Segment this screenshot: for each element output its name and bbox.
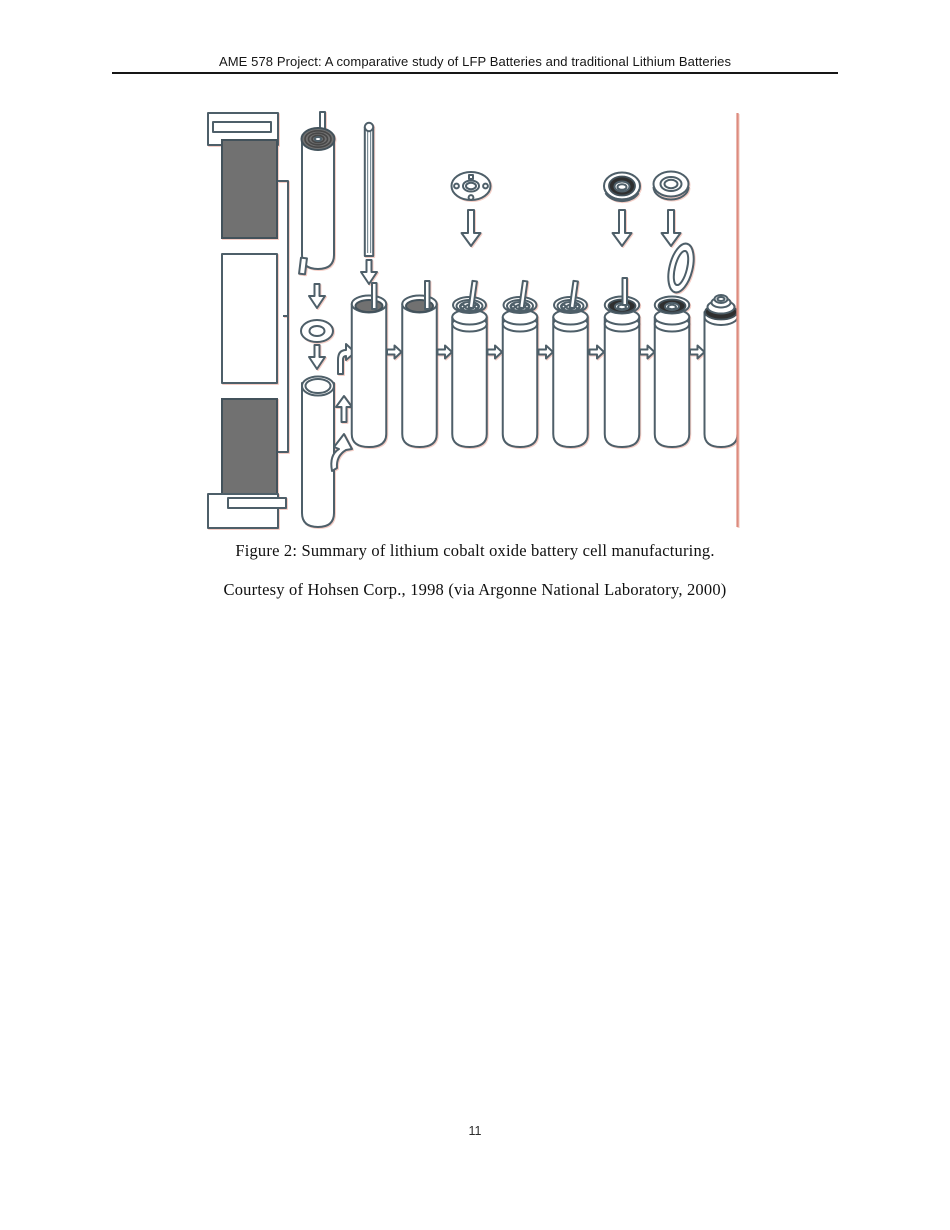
- up-arrow: [336, 396, 352, 422]
- report-page: { "header": { "title": "AME 578 Project:…: [0, 0, 950, 1230]
- battery-can: [302, 377, 334, 528]
- jelly-roll-tab: [299, 258, 307, 275]
- down-arrow: [361, 260, 377, 284]
- center-pin-rod: [365, 123, 373, 256]
- cell-step-3-beaded: [452, 281, 487, 447]
- down-arrow: [662, 210, 681, 246]
- electrode-sheet-stack: [208, 113, 288, 528]
- separator-sheet: [222, 254, 277, 383]
- cell-step-6-gasket-seated: [605, 278, 640, 447]
- gasket-seal-ring: [604, 173, 640, 202]
- page-header-title: AME 578 Project: A comparative study of …: [0, 54, 950, 69]
- figure-credit: Courtesy of Hohsen Corp., 1998 (via Argo…: [0, 580, 950, 600]
- safety-vent-disc: [452, 172, 491, 200]
- stack-bracket: [278, 181, 288, 452]
- top-electrode-tab: [213, 122, 271, 132]
- down-arrow: [613, 210, 632, 246]
- cell-step-7-cap-welding: [655, 241, 698, 447]
- battery-manufacturing-diagram: [200, 100, 748, 535]
- cell-step-5-electrolyte-filled: [553, 281, 588, 447]
- jelly-roll-winding: [299, 112, 334, 274]
- figure-caption: Figure 2: Summary of lithium cobalt oxid…: [0, 541, 950, 561]
- top-cap-ring: [654, 172, 689, 200]
- insulator-washer: [301, 320, 333, 342]
- cell-step-2-pin-inserted: [402, 281, 437, 447]
- bottom-electrode-tab: [228, 498, 286, 508]
- figure-2-diagram: [200, 100, 748, 535]
- cap-ring-leaning: [664, 241, 698, 295]
- down-arrow: [462, 210, 481, 246]
- cell-step-8-finished: [705, 295, 738, 447]
- page-number: 11: [0, 1124, 950, 1138]
- cell-step-4-vent-placed: [503, 281, 538, 447]
- anode-sheet: [222, 399, 277, 496]
- cell-step-1-roll-inserted: [352, 283, 387, 447]
- down-arrow: [309, 345, 325, 369]
- down-arrow: [309, 284, 325, 308]
- cathode-sheet: [222, 140, 277, 238]
- header-rule: [112, 72, 838, 74]
